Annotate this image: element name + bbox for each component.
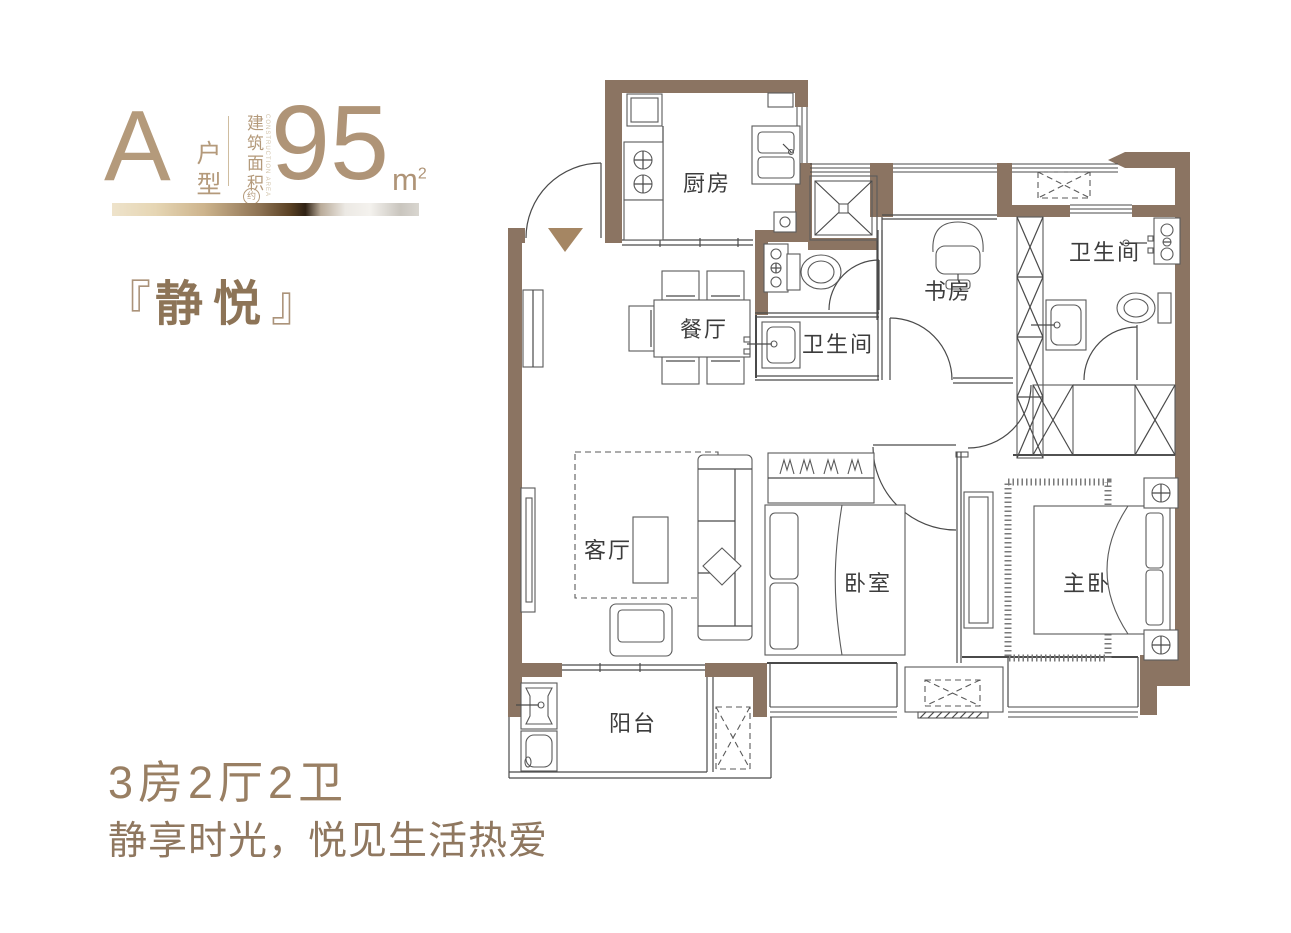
washer-icon [764, 244, 788, 292]
floor-drain-icon [774, 212, 796, 232]
pillow-icon [770, 513, 798, 579]
armchair-icon [610, 604, 672, 656]
balcony-fixtures [516, 683, 557, 771]
master-bedroom-furniture [964, 478, 1178, 660]
toilet-icon [787, 254, 841, 290]
label-master: 主卧 [1063, 571, 1111, 596]
shoe-cabinet-icon [523, 290, 543, 367]
wardrobe-icon [768, 453, 874, 503]
label-kitchen: 厨房 [683, 171, 731, 196]
floorplan-drawing: 厨房 餐厅 卫生间 书房 卫生间 客厅 卧室 主卧 阳台 [0, 0, 1291, 933]
label-dining: 餐厅 [680, 317, 728, 342]
floorplan-page: A 户型 建筑面积 CONSTRUCTION AREA 约 95 m2 『静悦』… [0, 0, 1291, 933]
basin2-icon [1031, 300, 1086, 350]
ensuite-door-arc [1084, 327, 1137, 380]
label-bedroom: 卧室 [844, 571, 892, 596]
bedroom-furniture [765, 453, 905, 655]
fridge-icon [627, 94, 662, 126]
cabinet-icon [624, 200, 663, 240]
shaft-icon [810, 176, 877, 240]
pillow-icon [1146, 513, 1163, 568]
duct-column-icon [1017, 217, 1043, 458]
nightstand-icon [1144, 478, 1178, 508]
ac-unit-balcony-icon [716, 707, 750, 769]
washer2-icon [1154, 218, 1180, 264]
entry-door-arc [526, 163, 601, 238]
label-bathroom-ensuite: 卫生间 [1069, 240, 1141, 265]
laundry-sink-icon [516, 683, 557, 729]
ac-platform-top-icon [1038, 172, 1090, 198]
master-door-arc [968, 385, 1031, 448]
kitchen-sink-icon [752, 126, 800, 184]
pillow-icon [1146, 570, 1163, 625]
sofa-icon [698, 455, 752, 640]
washing-machine-icon [521, 731, 557, 771]
master-bed-icon [1034, 506, 1170, 634]
ensuite-fixtures [1031, 218, 1180, 350]
kitchen-fixtures [624, 93, 800, 240]
ac-platform-south-icon [905, 667, 1003, 718]
closet-shaft-icons [1033, 385, 1175, 455]
nightstand-icon [1144, 630, 1178, 660]
label-living: 客厅 [584, 538, 632, 563]
vent-icon [768, 93, 793, 107]
basin-icon [744, 322, 800, 368]
master-wardrobe-icon [964, 492, 993, 628]
pillow-icon [770, 583, 798, 649]
study-door-arc [890, 318, 952, 380]
label-study: 书房 [924, 279, 972, 304]
entry-marker-icon [548, 228, 583, 252]
toilet2-icon [1117, 293, 1171, 323]
stove-icon [624, 142, 663, 200]
label-balcony: 阳台 [609, 711, 657, 736]
tv-icon [521, 488, 535, 612]
coffee-table-icon [633, 517, 668, 583]
label-bathroom-main: 卫生间 [802, 332, 874, 357]
